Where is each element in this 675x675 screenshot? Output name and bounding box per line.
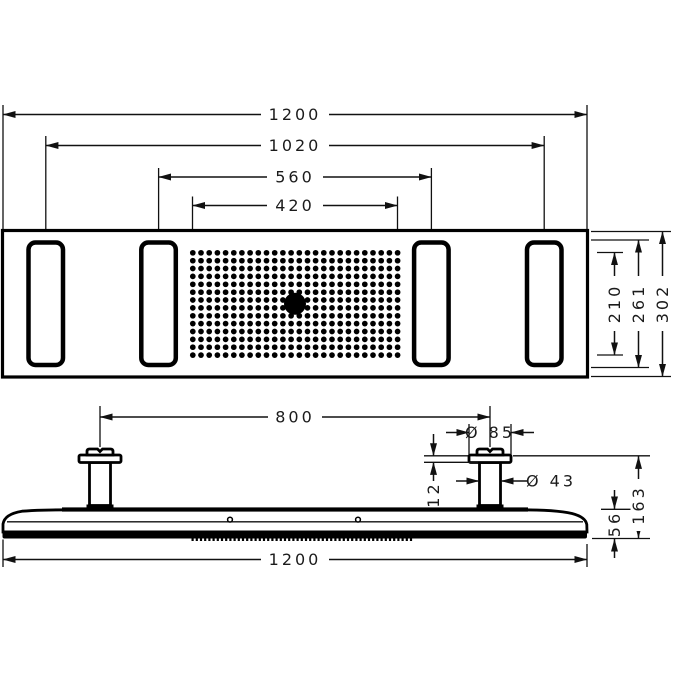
shower-dimension-drawing: 1200 1020 560 420: [0, 0, 675, 675]
bottom-spray-plate: [3, 531, 588, 539]
left-connector-pipe: [90, 463, 111, 506]
dim-label-connector-spacing: 800: [275, 408, 315, 427]
right-connector-foot: [477, 505, 504, 510]
side-view: 800 Ø 85: [3, 406, 651, 569]
left-ceiling-connector: [79, 449, 121, 510]
nozzle-serration: [192, 538, 413, 541]
dim-label-outer-zone-spacing: 1020: [269, 136, 322, 155]
spray-zone-outline: [414, 243, 449, 366]
right-ceiling-connector: [469, 449, 511, 510]
shower-body-side-view: [3, 510, 587, 532]
dim-label-connector-diameter: Ø 43: [526, 472, 576, 491]
dim-label-overall-depth: 302: [653, 284, 672, 324]
dim-label-overall-width-top: 1200: [269, 105, 322, 124]
top-screw-left: [228, 517, 233, 522]
spray-zone-outline: [29, 243, 64, 366]
dim-label-total-height: 163: [629, 485, 648, 525]
right-connector-pipe: [480, 463, 501, 506]
technical-drawing-page: 1200 1020 560 420: [0, 0, 675, 675]
central-nozzle: [284, 293, 306, 315]
dim-label-escutcheon-diameter: Ø 85: [465, 423, 515, 442]
dim-label-body-height: 56: [605, 511, 624, 537]
dim-label-spray-field-width: 420: [275, 196, 315, 215]
left-connector-cap: [87, 449, 113, 455]
left-connector-foot: [87, 505, 114, 510]
top-screw-right: [356, 517, 361, 522]
dim-label-spray-field-depth: 210: [605, 284, 624, 324]
spray-zone-outline: [141, 243, 176, 366]
dim-label-inner-zone-spacing: 560: [275, 168, 315, 187]
dim-label-zone-depth: 261: [629, 284, 648, 324]
right-connector-cap: [477, 449, 503, 455]
spray-zone-outline: [527, 243, 562, 366]
dim-label-escutcheon-height: 12: [424, 481, 443, 507]
top-view: 1200 1020 560 420: [3, 105, 673, 377]
dim-label-overall-width-bottom: 1200: [269, 550, 322, 569]
mounting-plate-strip: [62, 507, 528, 511]
